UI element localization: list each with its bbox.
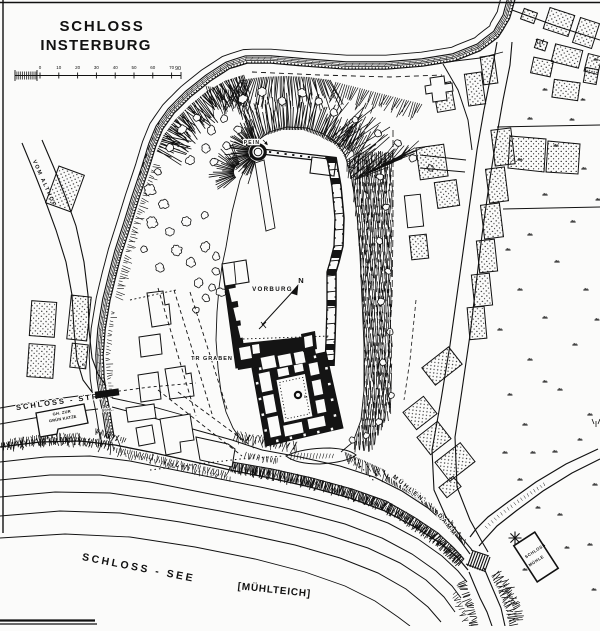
svg-text:PEIN: PEIN: [244, 140, 260, 146]
svg-text:N: N: [298, 276, 303, 285]
svg-text:90: 90: [175, 66, 181, 72]
svg-text:30: 30: [94, 65, 100, 70]
svg-text:SCHLOSS: SCHLOSS: [59, 18, 144, 35]
svg-text:40: 40: [113, 65, 119, 70]
svg-text:10: 10: [56, 65, 62, 70]
svg-text:50: 50: [131, 65, 137, 70]
svg-text:60: 60: [150, 65, 156, 70]
svg-text:INSTERBURG: INSTERBURG: [40, 37, 151, 54]
svg-text:TR GRABEN: TR GRABEN: [191, 356, 233, 362]
svg-text:VORBURG.: VORBURG.: [252, 286, 296, 293]
svg-text:20: 20: [75, 65, 81, 70]
svg-text:G.: G.: [82, 362, 86, 367]
svg-text:Br.: Br.: [304, 395, 308, 399]
svg-text:70: 70: [169, 65, 175, 70]
